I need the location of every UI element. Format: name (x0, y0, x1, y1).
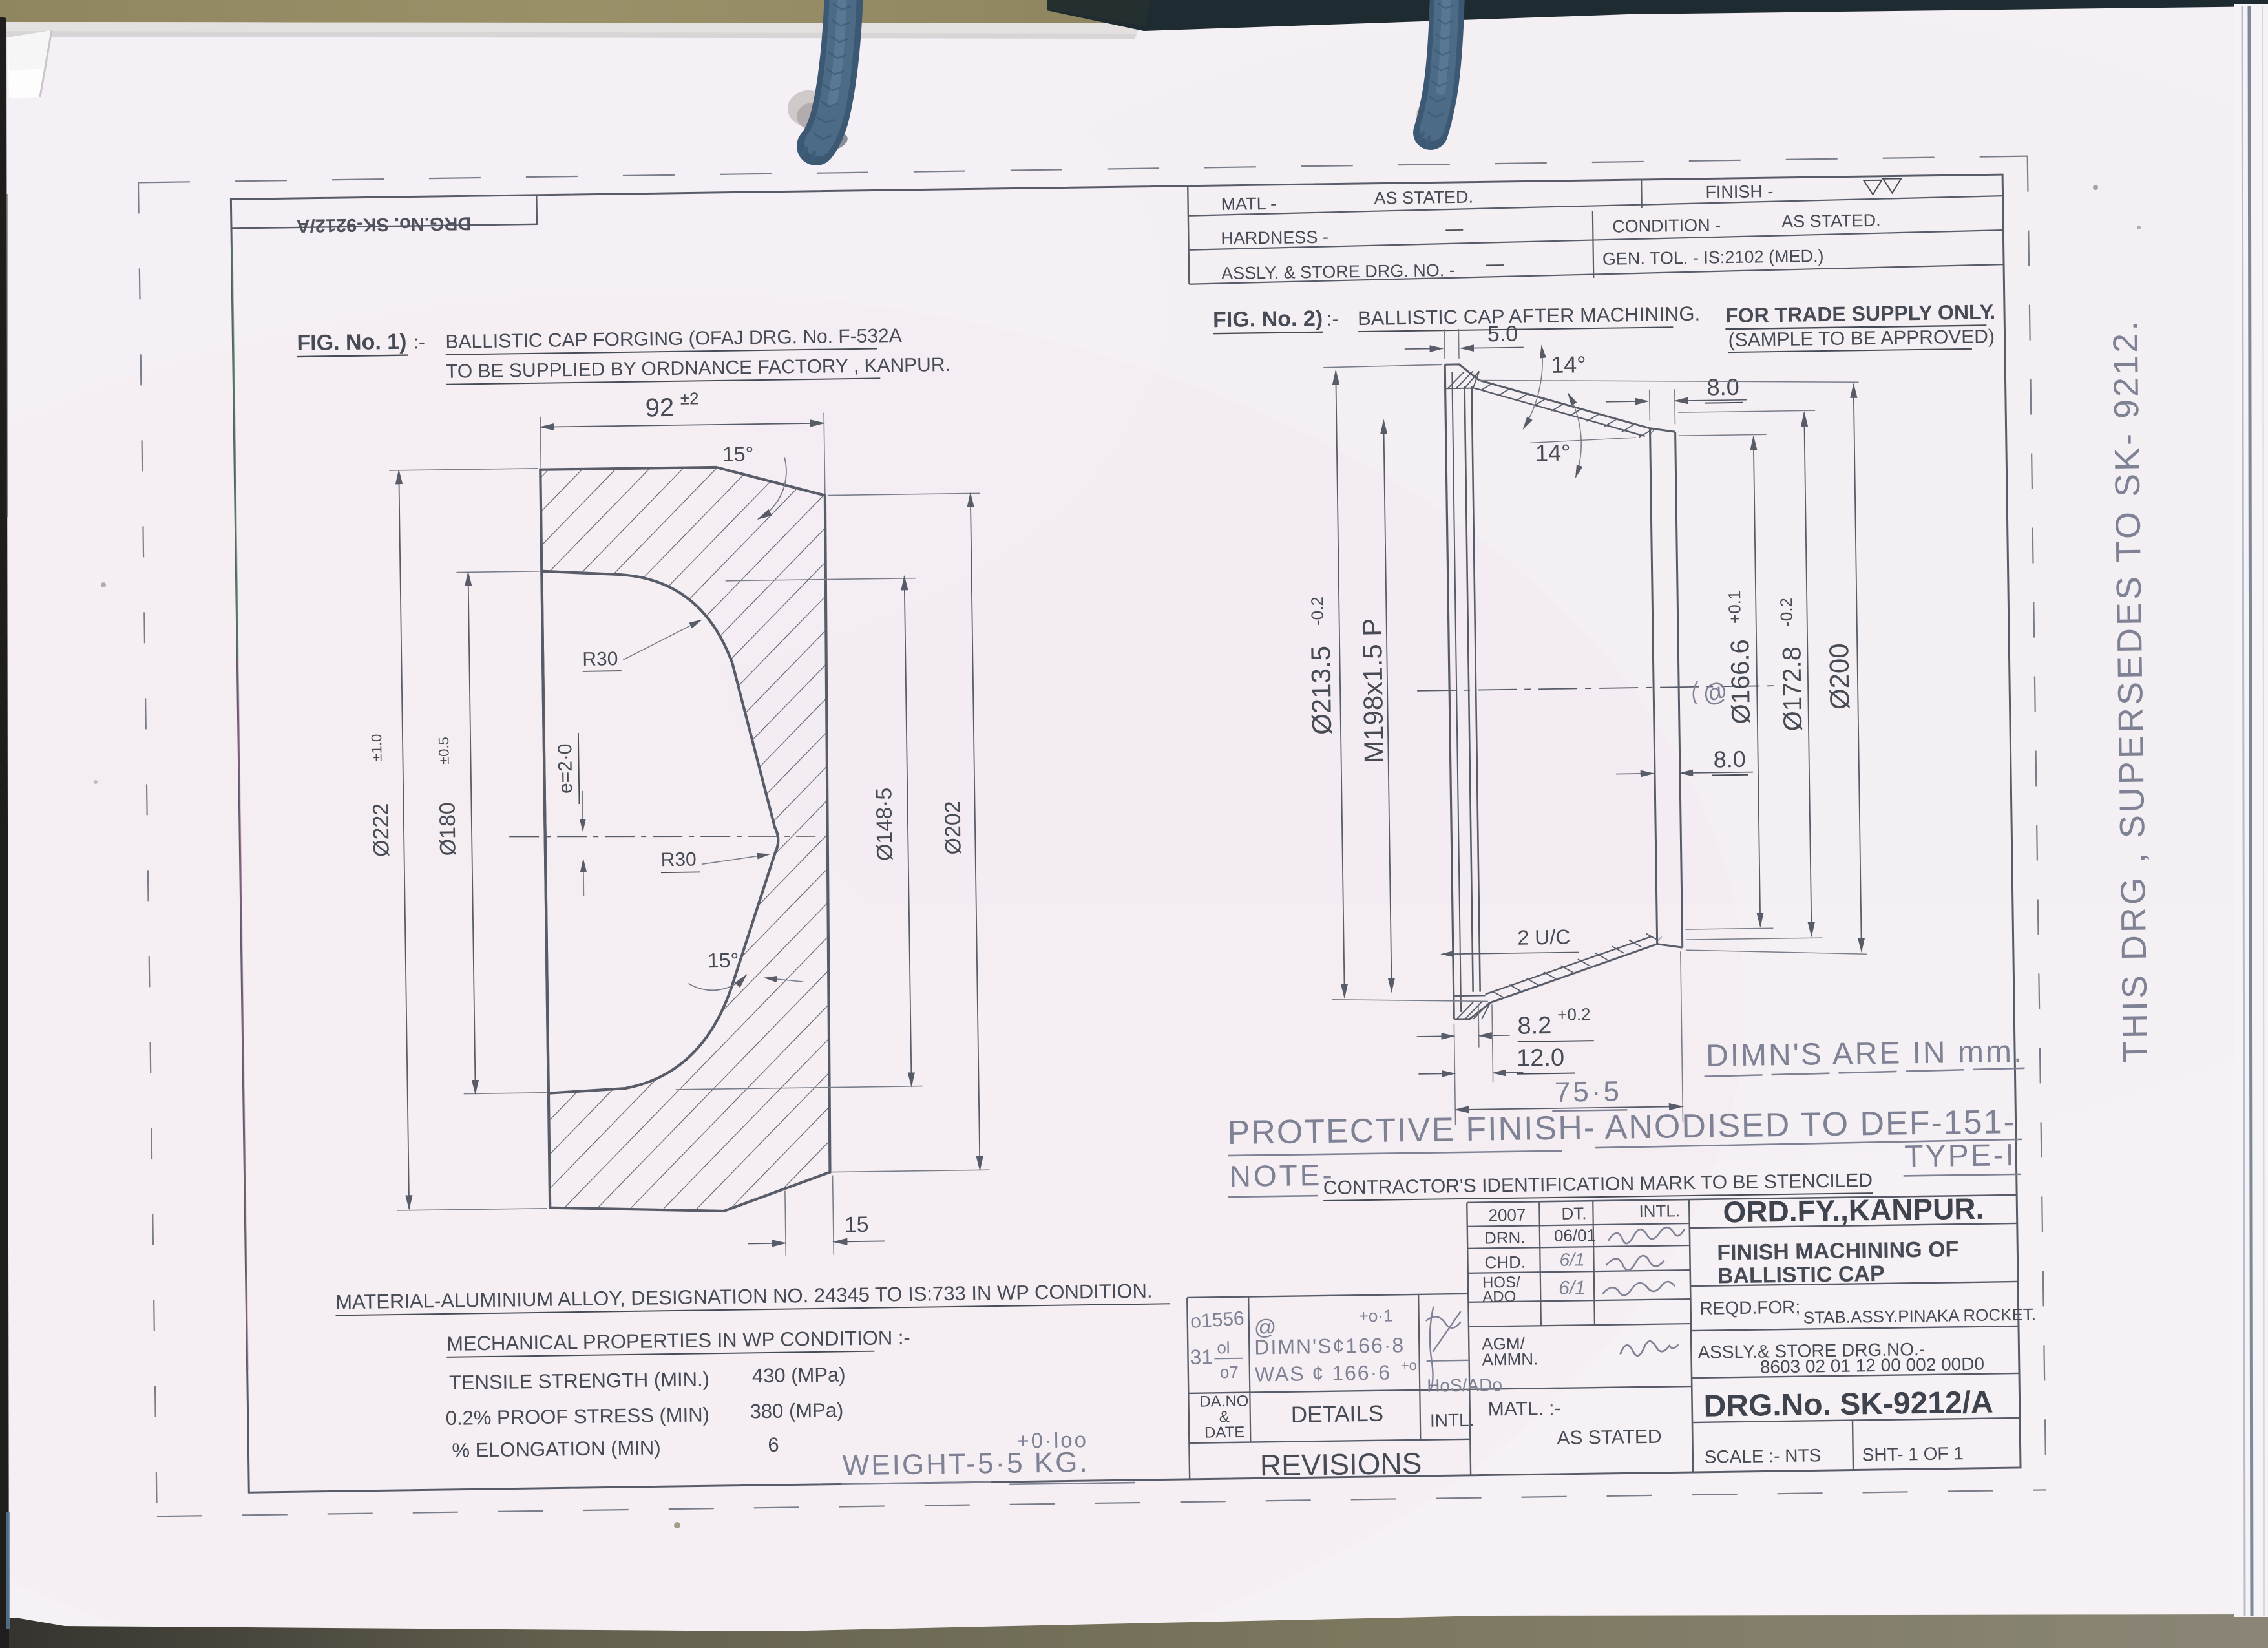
svg-text:FOR TRADE SUPPLY ONLY: FOR TRADE SUPPLY ONLY (1725, 300, 1993, 327)
svg-text:BALLISTIC CAP AFTER MACHINING.: BALLISTIC CAP AFTER MACHINING. (1358, 302, 1700, 330)
svg-text:SHT- 1 OF 1: SHT- 1 OF 1 (1862, 1443, 1964, 1464)
svg-text:FIG. No. 2): FIG. No. 2) (1213, 306, 1323, 332)
svg-text:R30: R30 (582, 648, 618, 670)
svg-text:6/1: 6/1 (1559, 1249, 1584, 1270)
svg-text:15: 15 (844, 1212, 868, 1238)
svg-text:HoS/ADo: HoS/ADo (1427, 1375, 1502, 1396)
svg-text:5.0: 5.0 (1487, 322, 1518, 347)
svg-text:06/01: 06/01 (1554, 1225, 1596, 1245)
svg-text:REQD.FOR;: REQD.FOR; (1699, 1297, 1800, 1318)
svg-text:FIG. No. 1): FIG. No. 1) (297, 330, 407, 355)
svg-text:CONDITION -: CONDITION - (1612, 215, 1721, 236)
svg-text:HARDNESS -: HARDNESS - (1221, 227, 1328, 248)
svg-text:MATERIAL-: MATERIAL- (335, 1289, 441, 1313)
svg-text:+0.2: +0.2 (1557, 1004, 1591, 1024)
svg-text:(SAMPLE TO BE APPROVED): (SAMPLE TO BE APPROVED) (1728, 326, 1995, 351)
svg-text:75·5: 75·5 (1555, 1076, 1622, 1108)
svg-text:±1.0: ±1.0 (368, 734, 385, 762)
svg-text:ORD.FY.,KANPUR.: ORD.FY.,KANPUR. (1723, 1192, 1984, 1229)
svg-text:ol: ol (1217, 1338, 1230, 1357)
svg-text::-: :- (1327, 309, 1339, 330)
svg-text:DATE: DATE (1204, 1424, 1245, 1442)
svg-text:15°: 15° (708, 949, 739, 973)
svg-text:MATL. :-: MATL. :- (1487, 1398, 1560, 1421)
svg-text:AS STATED: AS STATED (1557, 1426, 1662, 1449)
svg-text:Ø166.6: Ø166.6 (1726, 639, 1756, 724)
svg-text:8.2: 8.2 (1517, 1012, 1551, 1040)
svg-text:2007: 2007 (1488, 1205, 1526, 1225)
svg-text:CHD.: CHD. (1484, 1252, 1526, 1273)
svg-text:14°: 14° (1535, 439, 1571, 467)
svg-text:DETAILS: DETAILS (1291, 1401, 1384, 1428)
svg-text:Ø200: Ø200 (1823, 643, 1854, 710)
svg-text:DIMN'S ARE IN mm.: DIMN'S ARE IN mm. (1706, 1035, 2024, 1073)
svg-text:R30: R30 (660, 849, 697, 871)
svg-text:380 (MPa): 380 (MPa) (750, 1399, 843, 1422)
svg-text:+o·: +o· (1401, 1357, 1422, 1373)
svg-text:DRG.No. SK-9212/A: DRG.No. SK-9212/A (296, 213, 471, 236)
svg-text:6: 6 (768, 1433, 779, 1456)
svg-text:0.2% PROOF STRESS (MIN): 0.2% PROOF STRESS (MIN) (445, 1403, 709, 1430)
svg-text:o1556: o1556 (1190, 1307, 1244, 1332)
svg-text:2 U/C: 2 U/C (1517, 925, 1570, 949)
svg-text:Ø222: Ø222 (368, 803, 394, 857)
svg-text:Ø213.5: Ø213.5 (1305, 646, 1337, 735)
svg-text:INTL.: INTL. (1639, 1201, 1680, 1221)
svg-text:% ELONGATION (MIN): % ELONGATION (MIN) (452, 1436, 661, 1462)
svg-text:—: — (1445, 219, 1463, 238)
svg-text:GEN. TOL. - IS:2102 (MED.): GEN. TOL. - IS:2102 (MED.) (1602, 246, 1824, 269)
svg-text:12.0: 12.0 (1517, 1044, 1565, 1072)
svg-text:MATL -: MATL - (1221, 194, 1276, 214)
svg-text:±0.5: ±0.5 (436, 737, 452, 765)
svg-text:INTL.: INTL. (1430, 1410, 1475, 1431)
svg-text:REVISIONS: REVISIONS (1260, 1446, 1422, 1482)
svg-text:FINISH -: FINISH - (1705, 182, 1773, 202)
svg-text:ASSLY. & STORE DRG. NO. -: ASSLY. & STORE DRG. NO. - (1221, 260, 1455, 283)
svg-text:TENSILE STRENGTH (MIN.): TENSILE STRENGTH (MIN.) (449, 1368, 709, 1394)
svg-text:M198x1.5 P: M198x1.5 P (1357, 618, 1389, 763)
svg-text:Ø148·5: Ø148·5 (872, 787, 898, 861)
svg-text:BALLISTIC CAP: BALLISTIC CAP (1717, 1262, 1885, 1289)
svg-text:DRN.: DRN. (1484, 1228, 1526, 1248)
svg-text:DIMN'S¢166·8: DIMN'S¢166·8 (1254, 1333, 1405, 1358)
svg-text:31: 31 (1190, 1345, 1213, 1368)
svg-text:Ø172.8: Ø172.8 (1778, 646, 1807, 732)
svg-text:15°: 15° (722, 442, 754, 466)
svg-text:e=2·0: e=2·0 (554, 743, 576, 794)
svg-text:—: — (1486, 254, 1504, 273)
svg-text:8603 02 01 12 00 002 00D0: 8603 02 01 12 00 002 00D0 (1760, 1354, 1985, 1377)
svg-text:WAS ¢ 166·6: WAS ¢ 166·6 (1255, 1361, 1392, 1386)
svg-text:Ø202: Ø202 (940, 801, 965, 855)
svg-text:14°: 14° (1551, 351, 1586, 378)
svg-text:STAB.ASSY.PINAKA ROCKET.: STAB.ASSY.PINAKA ROCKET. (1803, 1305, 2037, 1327)
svg-text:AS STATED.: AS STATED. (1374, 187, 1473, 208)
svg-text:+o·1: +o·1 (1358, 1305, 1392, 1326)
svg-text:+0.1: +0.1 (1725, 590, 1745, 624)
svg-text:SCALE :- NTS: SCALE :- NTS (1705, 1445, 1822, 1467)
svg-text:430 (MPa): 430 (MPa) (752, 1363, 846, 1387)
svg-text:±2: ±2 (680, 388, 699, 408)
svg-text:ADO: ADO (1482, 1288, 1516, 1306)
svg-text:Ø180: Ø180 (435, 802, 460, 856)
svg-text:NOTE-: NOTE- (1229, 1158, 1335, 1193)
svg-text:-0.2: -0.2 (1776, 598, 1796, 627)
svg-text:6/1: 6/1 (1559, 1277, 1586, 1299)
svg-text:.: . (1990, 300, 1995, 323)
svg-text:-0.2: -0.2 (1307, 597, 1327, 626)
svg-text:92: 92 (645, 394, 674, 423)
svg-text:8.0: 8.0 (1713, 746, 1746, 773)
svg-text:DRG.No. SK-9212/A: DRG.No. SK-9212/A (1703, 1386, 1993, 1424)
svg-text:+0·loo: +0·loo (1016, 1428, 1088, 1453)
svg-text:DT.: DT. (1561, 1203, 1586, 1223)
svg-text:AMMN.: AMMN. (1482, 1349, 1538, 1369)
svg-text:8.0: 8.0 (1706, 374, 1739, 401)
svg-text:AS STATED.: AS STATED. (1781, 211, 1881, 231)
svg-text::-: :- (413, 332, 425, 353)
svg-text:FINISH MACHINING OF: FINISH MACHINING OF (1717, 1237, 1958, 1265)
svg-text:TYPE-I: TYPE-I (1904, 1138, 2016, 1174)
svg-text:o7: o7 (1220, 1362, 1239, 1382)
